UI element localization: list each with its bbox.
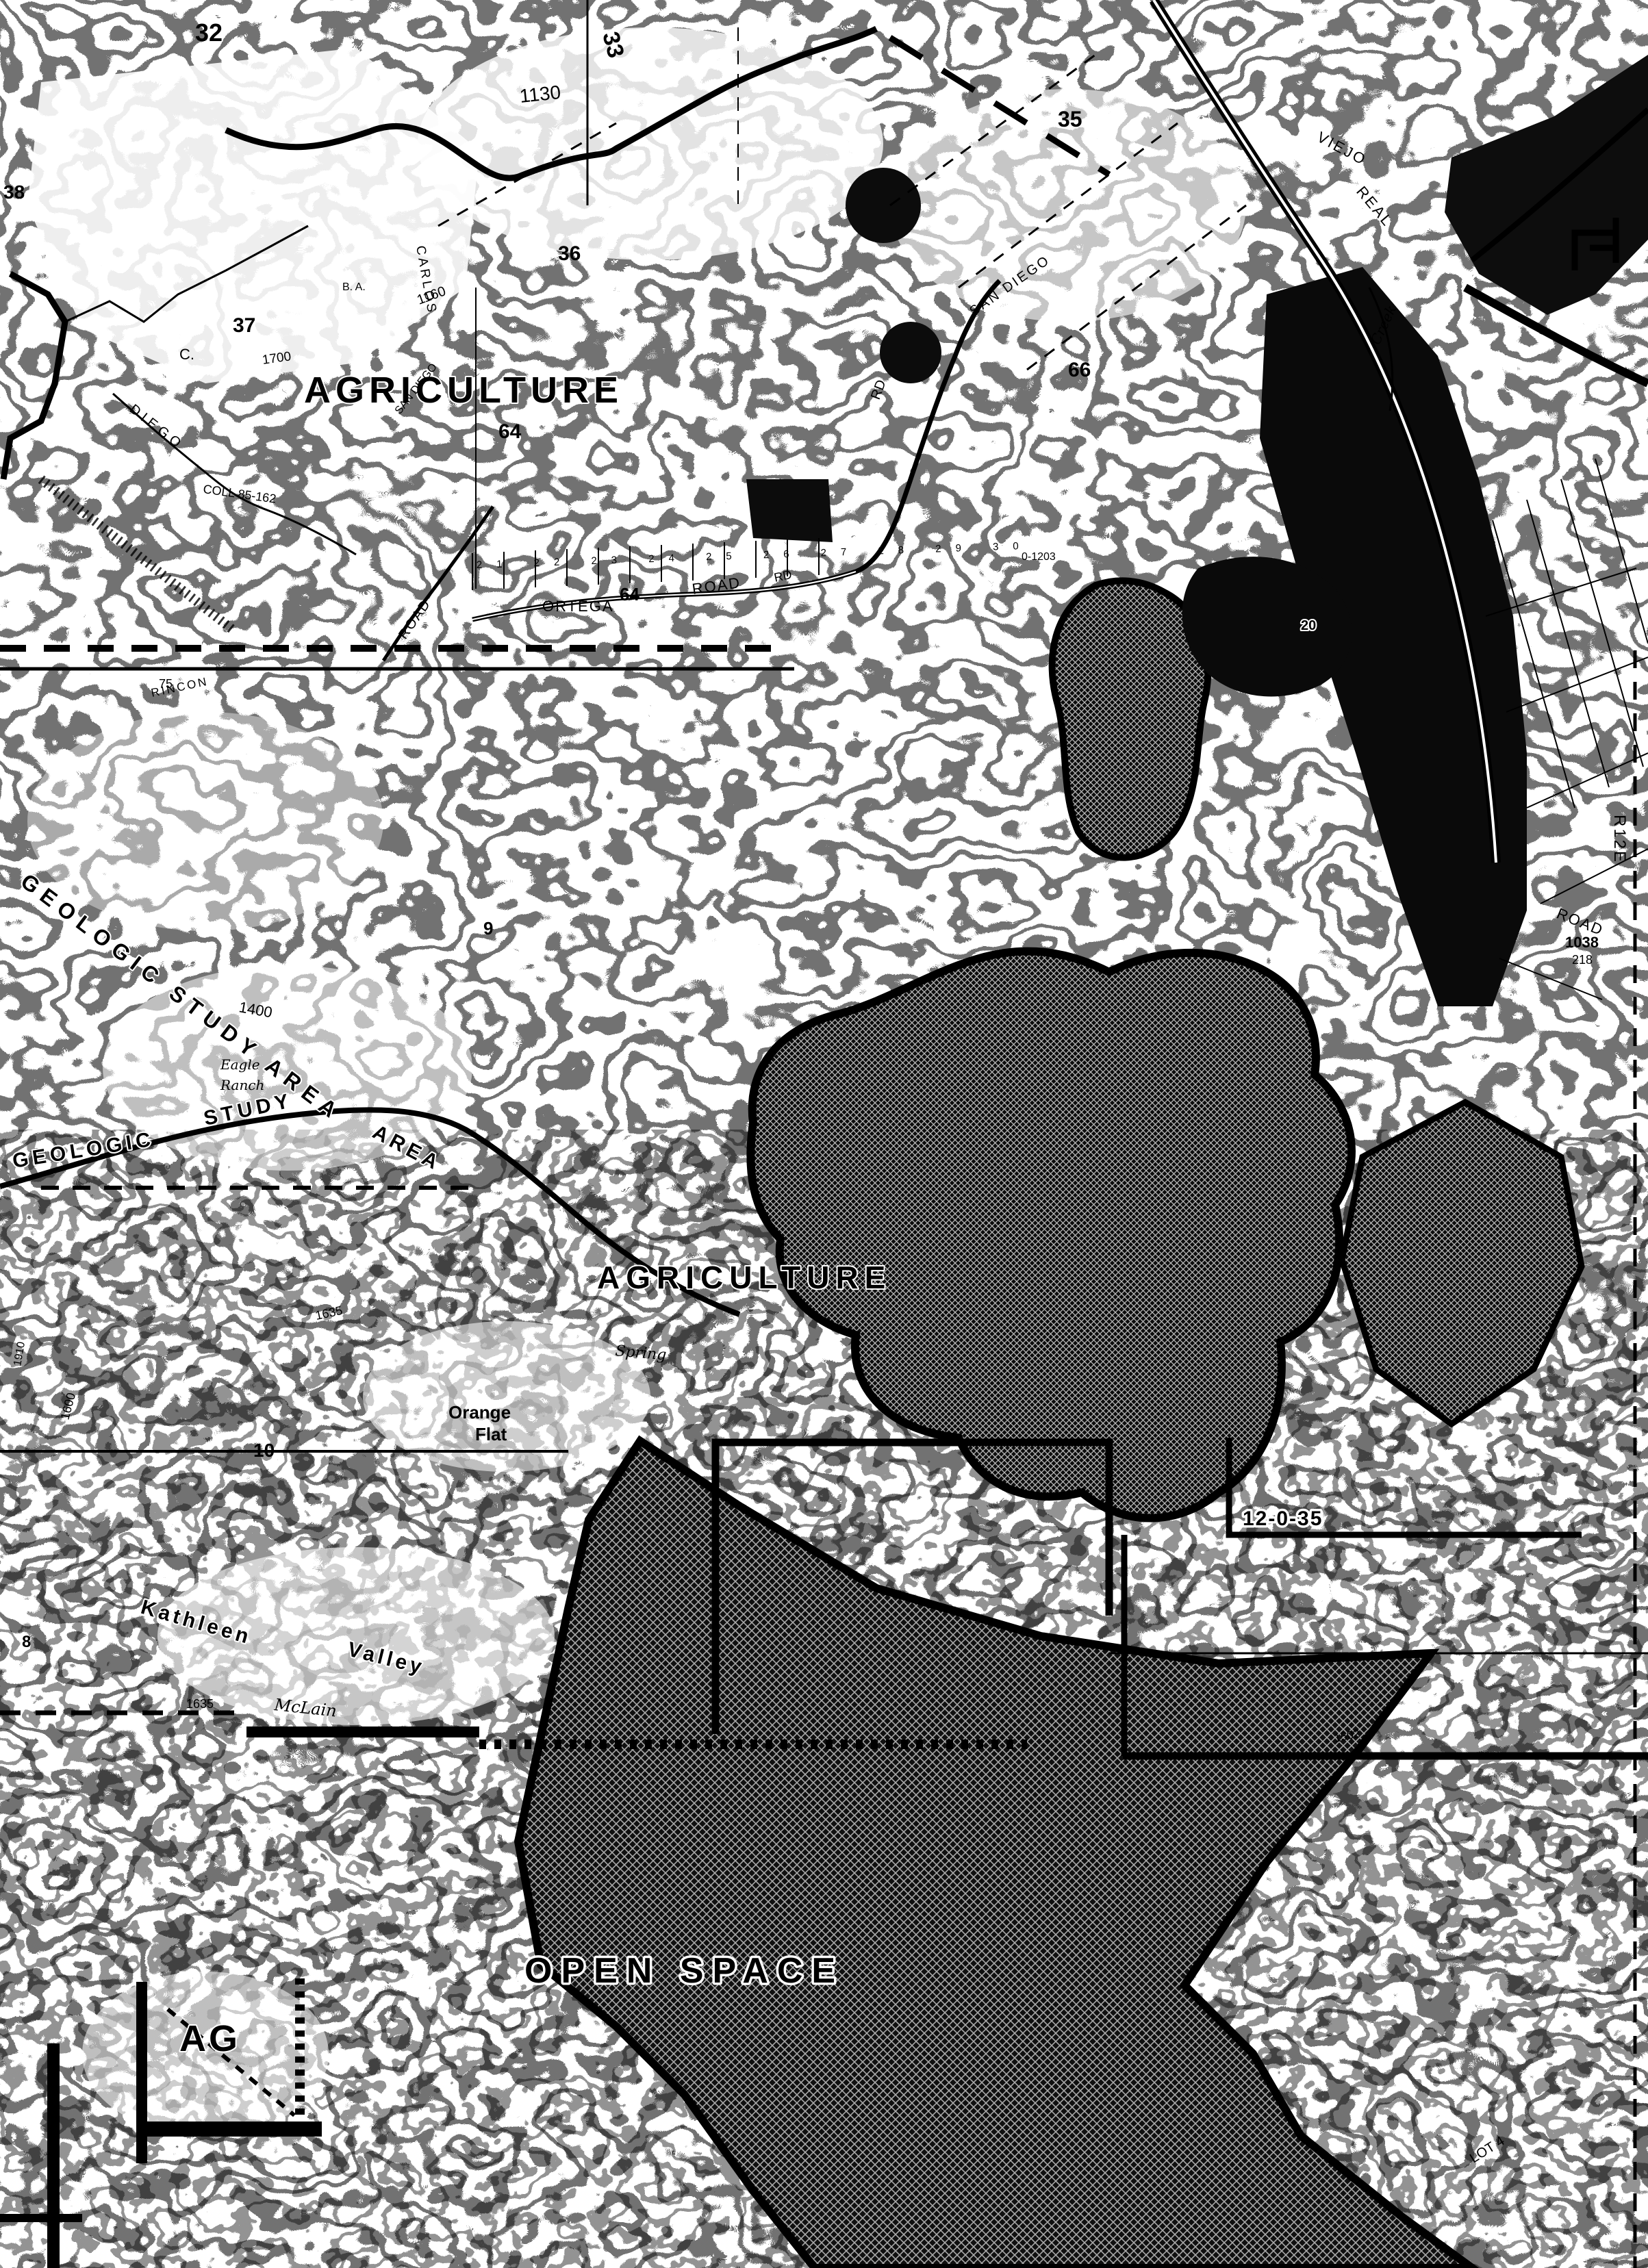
place-name-flat: Flat [475,1424,507,1444]
section-number-36: 36 [558,242,581,265]
elevation-1635-b: 1635 [186,1697,214,1711]
section-number-20: 20 [1301,618,1316,633]
section-number-64: 64 [498,420,522,443]
place-name-ranch: Ranch [220,1077,264,1093]
range-label-r12e: R12E [1610,815,1629,864]
section-number-37: 37 [233,314,255,337]
label-b-a: B. A. [342,281,366,293]
scanned-zoning-map: 32 33 1130 38 37 36 35 C. DIEGO COLL 85-… [0,0,1648,2268]
zone-label-agriculture-top: AGRICULTURE [304,370,623,411]
road-name-ortega: ORTEGA [542,598,614,615]
elevation-218: 218 [1572,953,1593,967]
ink-blob-small-b [846,168,921,243]
parcel-number-12-0-35: 12-0-35 [1243,1507,1323,1530]
place-name-orange: Orange [448,1402,511,1423]
ink-blob-small-c [880,322,941,383]
zone-label-ag: AG [179,2018,240,2059]
zone-label-agriculture-middle: AGRICULTURE [597,1260,891,1295]
map-canvas: 32 33 1130 38 37 36 35 C. DIEGO COLL 85-… [0,0,1648,2268]
section-number-8: 8 [22,1633,31,1651]
section-number-32: 32 [195,18,223,47]
section-number-10: 10 [253,1440,275,1461]
zone-label-open-space: OPEN SPACE [524,1951,844,1991]
section-number-64-road: 64 [620,584,639,604]
section-number-66: 66 [1068,359,1091,381]
elevation-75: 75 [159,677,173,691]
place-name-eagle: Eagle [220,1056,260,1073]
ink-blob-small-a [746,479,833,542]
elevation-1130: 1130 [518,81,561,107]
section-number-35: 35 [1058,107,1082,131]
section-number-9: 9 [483,918,493,939]
well-number-0-1203: 0-1203 [1022,551,1056,563]
label-c-dot: C. [179,346,194,363]
elevation-1038: 1038 [1565,934,1599,951]
section-number-38: 38 [3,181,25,203]
